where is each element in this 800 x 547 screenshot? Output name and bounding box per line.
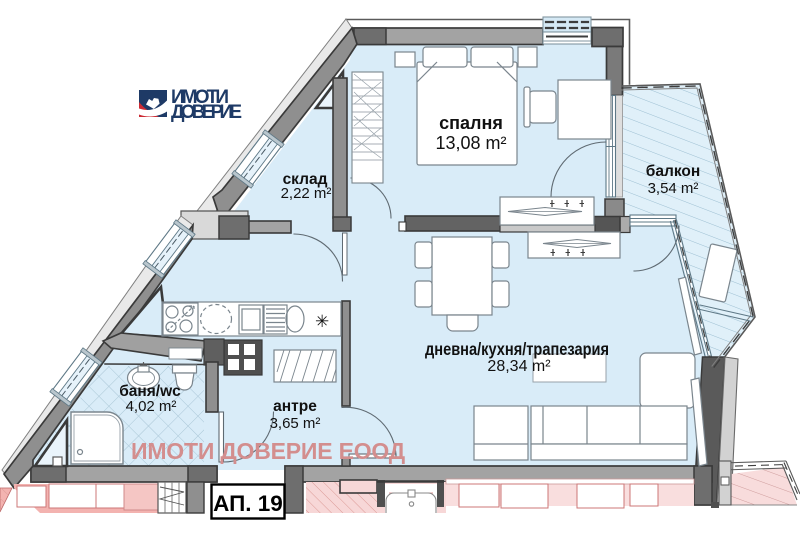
svg-text:спалня: спалня: [439, 113, 503, 133]
svg-text:3,65 m²: 3,65 m²: [270, 415, 321, 432]
svg-text:13,08 m²: 13,08 m²: [435, 133, 506, 153]
svg-text:2,22 m²: 2,22 m²: [281, 185, 332, 202]
svg-text:28,34 m²: 28,34 m²: [487, 358, 551, 375]
svg-text:антре: антре: [273, 398, 317, 415]
svg-text:✳: ✳: [315, 312, 329, 331]
svg-text:АП. 19: АП. 19: [213, 491, 283, 516]
svg-text:ИМОТИ ДОВЕРИЕ ЕООД: ИМОТИ ДОВЕРИЕ ЕООД: [131, 438, 405, 464]
svg-text:дневна/кухня/трапезария: дневна/кухня/трапезария: [425, 339, 609, 359]
svg-text:ДОВЕРИЕ: ДОВЕРИЕ: [171, 102, 242, 123]
svg-text:3,54 m²: 3,54 m²: [648, 180, 699, 197]
svg-text:балкон: балкон: [646, 163, 700, 180]
svg-text:4,02 m²: 4,02 m²: [126, 398, 177, 415]
